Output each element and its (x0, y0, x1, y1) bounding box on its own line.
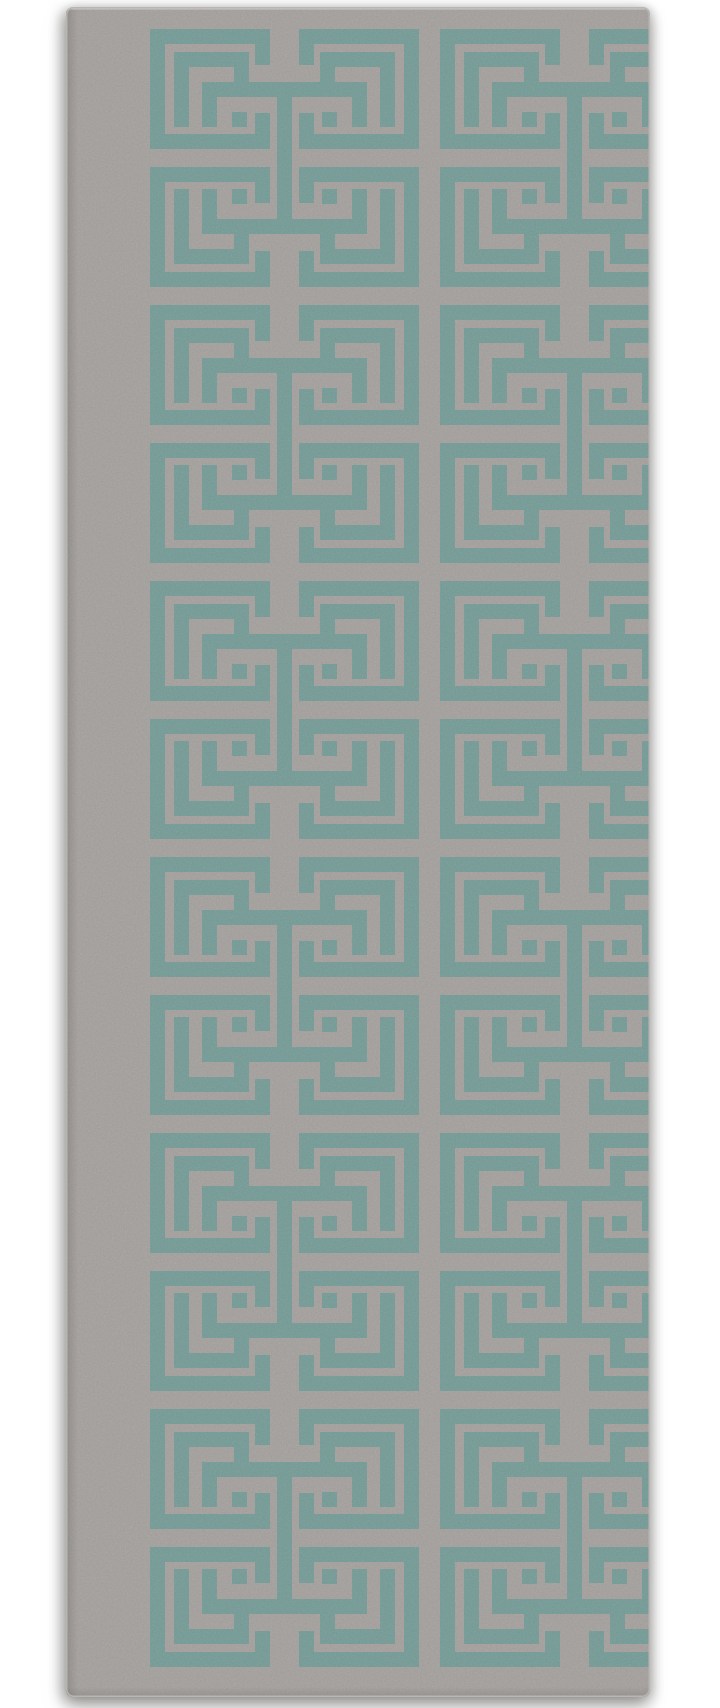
rug-photo (0, 0, 720, 1708)
photo-stage (0, 0, 720, 1708)
rug (66, 7, 709, 1697)
rug-texture (66, 7, 650, 1697)
